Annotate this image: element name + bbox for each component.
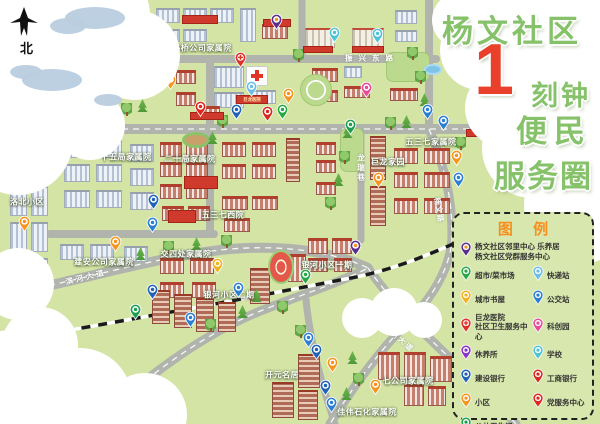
rest-pin-icon	[460, 344, 472, 365]
school-pin-icon	[532, 344, 544, 365]
book-pin-icon	[460, 289, 472, 310]
express-pin-icon	[532, 265, 544, 286]
cloud	[406, 302, 442, 338]
legend-item-label: 科创园	[547, 322, 570, 331]
compass: 北	[8, 6, 48, 52]
hospital-pin-icon	[460, 317, 472, 338]
legend-item-label: 小区	[475, 398, 490, 407]
legend-item: 工商银行	[532, 368, 590, 389]
legend-item-label: 超市/菜市场	[475, 271, 515, 280]
blue-cloud	[50, 18, 86, 34]
legend-grid: 杨文社区邻里中心 乐养居杨文社区党群服务中心 超市/菜市场 快递站 城市书屋 公…	[460, 241, 588, 424]
community-pin-icon	[460, 392, 472, 413]
party-pin-icon	[532, 392, 544, 413]
title-line2: 便民	[516, 106, 592, 151]
legend-item: 建设银行	[460, 368, 532, 389]
legend-item: 公共卫生间	[460, 416, 590, 424]
community-map-poster: 巨龙医院 路桥公司家属院十五局家属院二十局家属院五三七家属院巨龙家园五三七西院洛…	[0, 0, 600, 424]
legend-item: 超市/菜市场	[460, 265, 532, 286]
legend-item: 快递站	[532, 265, 590, 286]
legend-item-label: 快递站	[547, 271, 570, 280]
legend-item: 休养所	[460, 344, 532, 365]
north-label: 北	[20, 38, 33, 57]
legend-item: 城市书屋	[460, 289, 532, 310]
legend-item: 杨文社区邻里中心 乐养居杨文社区党群服务中心	[460, 241, 590, 262]
legend-item: 巨龙医院社区卫生服务中心	[460, 313, 532, 341]
legend-item-label: 巨龙医院社区卫生服务中心	[475, 313, 532, 341]
legend-item: 科创园	[532, 313, 590, 341]
blue-cloud	[94, 94, 122, 106]
blue-cloud	[10, 65, 42, 79]
legend-item-label: 学校	[547, 350, 562, 359]
legend-item-label: 休养所	[475, 350, 498, 359]
neighborhood-pin-icon	[460, 241, 472, 262]
title-number: 1	[474, 34, 514, 106]
bus-pin-icon	[532, 289, 544, 310]
legend-item-label: 杨文社区邻里中心 乐养居杨文社区党群服务中心	[475, 242, 560, 261]
legend: 图 例 杨文社区邻里中心 乐养居杨文社区党群服务中心 超市/菜市场 快递站 城市…	[452, 212, 594, 420]
legend-item: 小区	[460, 392, 532, 413]
legend-item-label: 建设银行	[475, 374, 505, 383]
ccb-pin-icon	[460, 368, 472, 389]
legend-item: 学校	[532, 344, 590, 365]
legend-item-label: 党服务中心	[547, 398, 585, 407]
legend-item-label: 公交站	[547, 295, 570, 304]
legend-item: 党服务中心	[532, 392, 590, 413]
icbc-pin-icon	[532, 368, 544, 389]
legend-item-label: 城市书屋	[475, 295, 505, 304]
title-line3: 服务圈	[494, 151, 593, 196]
legend-item-label: 工商银行	[547, 374, 577, 383]
tech-pin-icon	[532, 317, 544, 338]
toilet-pin-icon	[460, 416, 472, 424]
supermarket-pin-icon	[460, 265, 472, 286]
legend-title: 图 例	[466, 218, 588, 239]
legend-item: 公交站	[532, 289, 590, 310]
